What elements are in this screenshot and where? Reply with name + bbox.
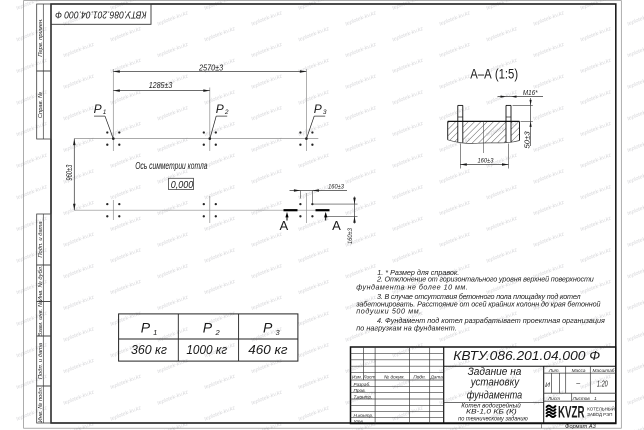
svg-text:P: P bbox=[314, 102, 322, 116]
svg-text:teplotek-kv.kz: teplotek-kv.kz bbox=[486, 89, 519, 106]
svg-text:teplotek-kv.kz: teplotek-kv.kz bbox=[392, 184, 425, 201]
svg-text:teplotek-kv.kz: teplotek-kv.kz bbox=[298, 310, 331, 327]
svg-text:teplotek-kv.kz: teplotek-kv.kz bbox=[0, 200, 1, 217]
svg-text:teplotek-kv.kz: teplotek-kv.kz bbox=[345, 105, 378, 122]
svg-text:teplotek-kv.kz: teplotek-kv.kz bbox=[486, 26, 519, 43]
svg-text:0,000: 0,000 bbox=[171, 179, 194, 191]
svg-text:teplotek-kv.kz: teplotek-kv.kz bbox=[204, 373, 237, 390]
svg-text:teplotek-kv.kz: teplotek-kv.kz bbox=[580, 26, 613, 43]
svg-text:P: P bbox=[141, 319, 151, 335]
svg-text:teplotek-kv.kz: teplotek-kv.kz bbox=[439, 73, 472, 90]
svg-text:teplotek-kv.kz: teplotek-kv.kz bbox=[204, 26, 237, 43]
svg-text:teplotek-kv.kz: teplotek-kv.kz bbox=[0, 294, 1, 311]
svg-text:teplotek-kv.kz: teplotek-kv.kz bbox=[251, 263, 284, 280]
svg-text:teplotek-kv.kz: teplotek-kv.kz bbox=[157, 42, 190, 59]
svg-text:teplotek-kv.kz: teplotek-kv.kz bbox=[63, 294, 96, 311]
svg-text:teplotek-kv.kz: teplotek-kv.kz bbox=[533, 231, 566, 248]
svg-text:teplotek-kv.kz: teplotek-kv.kz bbox=[251, 136, 284, 153]
svg-text:Листов: Листов bbox=[572, 396, 591, 401]
svg-text:teplotek-kv.kz: teplotek-kv.kz bbox=[580, 152, 613, 169]
svg-text:teplotek-kv.kz: teplotek-kv.kz bbox=[627, 231, 644, 248]
svg-text:teplotek-kv.kz: teplotek-kv.kz bbox=[298, 0, 331, 12]
svg-text:Инв. № дубл.: Инв. № дубл. bbox=[38, 265, 44, 301]
svg-text:teplotek-kv.kz: teplotek-kv.kz bbox=[63, 73, 96, 90]
svg-text:teplotek-kv.kz: teplotek-kv.kz bbox=[345, 10, 378, 27]
svg-text:teplotek-kv.kz: teplotek-kv.kz bbox=[63, 200, 96, 217]
svg-text:teplotek-kv.kz: teplotek-kv.kz bbox=[392, 342, 425, 359]
svg-text:2570±3: 2570±3 bbox=[198, 64, 224, 73]
svg-text:Утв.: Утв. bbox=[354, 419, 365, 424]
svg-text:teplotek-kv.kz: teplotek-kv.kz bbox=[251, 73, 284, 90]
svg-text:960±3: 960±3 bbox=[65, 164, 74, 180]
svg-text:teplotek-kv.kz: teplotek-kv.kz bbox=[63, 105, 96, 122]
svg-text:teplotek-kv.kz: teplotek-kv.kz bbox=[110, 310, 143, 327]
svg-text:teplotek-kv.kz: teplotek-kv.kz bbox=[439, 168, 472, 185]
svg-text:teplotek-kv.kz: teplotek-kv.kz bbox=[580, 247, 613, 264]
svg-text:teplotek-kv.kz: teplotek-kv.kz bbox=[251, 358, 284, 375]
svg-text:teplotek-kv.kz: teplotek-kv.kz bbox=[110, 89, 143, 106]
svg-text:50±3: 50±3 bbox=[524, 131, 531, 148]
svg-text:teplotek-kv.kz: teplotek-kv.kz bbox=[392, 0, 425, 12]
svg-text:teplotek-kv.kz: teplotek-kv.kz bbox=[627, 200, 644, 217]
svg-text:teplotek-kv.kz: teplotek-kv.kz bbox=[0, 105, 1, 122]
svg-text:Н.контр.: Н.контр. bbox=[354, 413, 374, 418]
svg-text:teplotek-kv.kz: teplotek-kv.kz bbox=[627, 263, 644, 280]
svg-text:P: P bbox=[203, 319, 213, 335]
svg-text:160±3: 160±3 bbox=[478, 158, 494, 165]
svg-text:teplotek-kv.kz: teplotek-kv.kz bbox=[627, 10, 644, 27]
svg-text:teplotek-kv.kz: teplotek-kv.kz bbox=[486, 0, 519, 12]
svg-text:P: P bbox=[216, 102, 224, 116]
svg-text:КВТУ.086.201.04.000 Ф: КВТУ.086.201.04.000 Ф bbox=[453, 348, 600, 363]
svg-text:1285±3: 1285±3 bbox=[149, 81, 173, 90]
svg-text:Разраб.: Разраб. bbox=[354, 382, 371, 387]
svg-text:teplotek-kv.kz: teplotek-kv.kz bbox=[204, 121, 237, 138]
svg-text:teplotek-kv.kz: teplotek-kv.kz bbox=[63, 326, 96, 343]
svg-text:А: А bbox=[279, 218, 288, 233]
svg-text:460 кг: 460 кг bbox=[248, 342, 288, 357]
svg-text:teplotek-kv.kz: teplotek-kv.kz bbox=[157, 389, 190, 406]
svg-text:teplotek-kv.kz: teplotek-kv.kz bbox=[580, 0, 613, 12]
svg-text:teplotek-kv.kz: teplotek-kv.kz bbox=[110, 26, 143, 43]
svg-text:2: 2 bbox=[215, 328, 221, 337]
svg-text:teplotek-kv.kz: teplotek-kv.kz bbox=[627, 136, 644, 153]
svg-text:teplotek-kv.kz: teplotek-kv.kz bbox=[392, 89, 425, 106]
svg-text:подушки 500 мм.: подушки 500 мм. bbox=[356, 307, 421, 316]
svg-text:teplotek-kv.kz: teplotek-kv.kz bbox=[251, 389, 284, 406]
svg-text:teplotek-kv.kz: teplotek-kv.kz bbox=[110, 279, 143, 296]
svg-text:teplotek-kv.kz: teplotek-kv.kz bbox=[392, 215, 425, 232]
svg-text:А–А (1:5): А–А (1:5) bbox=[470, 67, 518, 82]
svg-text:teplotek-kv.kz: teplotek-kv.kz bbox=[110, 184, 143, 201]
svg-text:Подп.: Подп. bbox=[413, 375, 425, 380]
svg-text:160±3: 160±3 bbox=[328, 184, 344, 191]
svg-text:teplotek-kv.kz: teplotek-kv.kz bbox=[0, 168, 1, 185]
svg-text:teplotek-kv.kz: teplotek-kv.kz bbox=[251, 42, 284, 59]
svg-text:teplotek-kv.kz: teplotek-kv.kz bbox=[204, 152, 237, 169]
svg-text:по нагрузкам на фундамент.: по нагрузкам на фундамент. bbox=[356, 323, 457, 332]
svg-text:teplotek-kv.kz: teplotek-kv.kz bbox=[298, 247, 331, 264]
svg-text:teplotek-kv.kz: teplotek-kv.kz bbox=[110, 247, 143, 264]
svg-text:teplotek-kv.kz: teplotek-kv.kz bbox=[486, 184, 519, 201]
svg-text:teplotek-kv.kz: teplotek-kv.kz bbox=[110, 57, 143, 74]
svg-text:teplotek-kv.kz: teplotek-kv.kz bbox=[157, 200, 190, 217]
svg-text:фундамента: фундамента bbox=[467, 390, 522, 402]
svg-text:teplotek-kv.kz: teplotek-kv.kz bbox=[627, 73, 644, 90]
svg-text:teplotek-kv.kz: teplotek-kv.kz bbox=[533, 105, 566, 122]
svg-text:teplotek-kv.kz: teplotek-kv.kz bbox=[345, 168, 378, 185]
svg-text:teplotek-kv.kz: teplotek-kv.kz bbox=[580, 184, 613, 201]
svg-text:teplotek-kv.kz: teplotek-kv.kz bbox=[392, 121, 425, 138]
svg-text:teplotek-kv.kz: teplotek-kv.kz bbox=[63, 136, 96, 153]
svg-text:teplotek-kv.kz: teplotek-kv.kz bbox=[345, 73, 378, 90]
svg-text:teplotek-kv.kz: teplotek-kv.kz bbox=[580, 57, 613, 74]
svg-text:160±3: 160±3 bbox=[347, 228, 354, 244]
svg-text:teplotek-kv.kz: teplotek-kv.kz bbox=[63, 263, 96, 280]
svg-text:teplotek-kv.kz: teplotek-kv.kz bbox=[0, 10, 1, 27]
svg-text:teplotek-kv.kz: teplotek-kv.kz bbox=[439, 42, 472, 59]
svg-text:М16*: М16* bbox=[523, 88, 539, 97]
svg-text:teplotek-kv.kz: teplotek-kv.kz bbox=[345, 263, 378, 280]
svg-text:teplotek-kv.kz: teplotek-kv.kz bbox=[392, 405, 425, 422]
svg-text:teplotek-kv.kz: teplotek-kv.kz bbox=[204, 184, 237, 201]
svg-text:360 кг: 360 кг bbox=[131, 342, 168, 357]
svg-text:teplotek-kv.kz: teplotek-kv.kz bbox=[486, 121, 519, 138]
svg-text:–: – bbox=[575, 381, 580, 388]
svg-text:teplotek-kv.kz: teplotek-kv.kz bbox=[486, 247, 519, 264]
svg-text:teplotek-kv.kz: teplotek-kv.kz bbox=[392, 152, 425, 169]
svg-text:КВ-1,0 КБ (К): КВ-1,0 КБ (К) bbox=[466, 409, 517, 416]
svg-text:teplotek-kv.kz: teplotek-kv.kz bbox=[298, 279, 331, 296]
svg-text:P: P bbox=[94, 102, 102, 116]
svg-text:teplotek-kv.kz: teplotek-kv.kz bbox=[627, 105, 644, 122]
svg-text:Лист: Лист bbox=[547, 396, 560, 401]
svg-text:teplotek-kv.kz: teplotek-kv.kz bbox=[0, 42, 1, 59]
svg-text:teplotek-kv.kz: teplotek-kv.kz bbox=[157, 105, 190, 122]
svg-text:teplotek-kv.kz: teplotek-kv.kz bbox=[0, 358, 1, 375]
svg-text:teplotek-kv.kz: teplotek-kv.kz bbox=[157, 231, 190, 248]
svg-text:teplotek-kv.kz: teplotek-kv.kz bbox=[392, 247, 425, 264]
svg-text:teplotek-kv.kz: teplotek-kv.kz bbox=[439, 136, 472, 153]
svg-text:Подп. и дата: Подп. и дата bbox=[38, 342, 44, 379]
svg-text:teplotek-kv.kz: teplotek-kv.kz bbox=[345, 136, 378, 153]
svg-text:teplotek-kv.kz: teplotek-kv.kz bbox=[110, 373, 143, 390]
svg-text:Взам. инв. №: Взам. инв. № bbox=[38, 301, 44, 337]
svg-text:teplotek-kv.kz: teplotek-kv.kz bbox=[251, 200, 284, 217]
svg-text:teplotek-kv.kz: teplotek-kv.kz bbox=[63, 42, 96, 59]
svg-text:teplotek-kv.kz: teplotek-kv.kz bbox=[298, 342, 331, 359]
svg-text:teplotek-kv.kz: teplotek-kv.kz bbox=[439, 200, 472, 217]
svg-text:teplotek-kv.kz: teplotek-kv.kz bbox=[63, 231, 96, 248]
svg-text:teplotek-kv.kz: teplotek-kv.kz bbox=[627, 168, 644, 185]
svg-text:teplotek-kv.kz: teplotek-kv.kz bbox=[204, 279, 237, 296]
svg-text:teplotek-kv.kz: teplotek-kv.kz bbox=[533, 168, 566, 185]
svg-text:teplotek-kv.kz: teplotek-kv.kz bbox=[0, 231, 1, 248]
svg-text:teplotek-kv.kz: teplotek-kv.kz bbox=[298, 121, 331, 138]
svg-text:1000 кг: 1000 кг bbox=[186, 342, 227, 357]
svg-text:Ось симметрии котла: Ось симметрии котла bbox=[135, 161, 207, 172]
svg-text:2: 2 bbox=[224, 109, 229, 116]
svg-text:teplotek-kv.kz: teplotek-kv.kz bbox=[486, 215, 519, 232]
svg-text:teplotek-kv.kz: teplotek-kv.kz bbox=[251, 168, 284, 185]
svg-text:teplotek-kv.kz: teplotek-kv.kz bbox=[0, 421, 1, 430]
svg-text:teplotek-kv.kz: teplotek-kv.kz bbox=[110, 215, 143, 232]
svg-text:Справ. №: Справ. № bbox=[38, 92, 44, 118]
svg-text:teplotek-kv.kz: teplotek-kv.kz bbox=[204, 215, 237, 232]
svg-text:teplotek-kv.kz: teplotek-kv.kz bbox=[627, 389, 644, 406]
svg-text:teplotek-kv.kz: teplotek-kv.kz bbox=[110, 121, 143, 138]
svg-text:teplotek-kv.kz: teplotek-kv.kz bbox=[298, 57, 331, 74]
svg-text:КОТЕЛЬНЫЙ: КОТЕЛЬНЫЙ bbox=[587, 407, 615, 412]
svg-text:1: 1 bbox=[594, 396, 597, 401]
svg-text:teplotek-kv.kz: teplotek-kv.kz bbox=[345, 42, 378, 59]
svg-text:1: 1 bbox=[103, 109, 107, 116]
svg-text:teplotek-kv.kz: teplotek-kv.kz bbox=[627, 326, 644, 343]
svg-text:1:20: 1:20 bbox=[597, 379, 608, 389]
svg-text:teplotek-kv.kz: teplotek-kv.kz bbox=[157, 136, 190, 153]
svg-text:teplotek-kv.kz: teplotek-kv.kz bbox=[204, 405, 237, 422]
svg-text:Подп. и дата: Подп. и дата bbox=[38, 221, 44, 258]
svg-text:teplotek-kv.kz: teplotek-kv.kz bbox=[204, 0, 237, 12]
svg-text:teplotek-kv.kz: teplotek-kv.kz bbox=[298, 152, 331, 169]
svg-text:teplotek-kv.kz: teplotek-kv.kz bbox=[580, 121, 613, 138]
svg-text:teplotek-kv.kz: teplotek-kv.kz bbox=[439, 10, 472, 27]
svg-text:teplotek-kv.kz: teplotek-kv.kz bbox=[627, 421, 644, 430]
svg-text:teplotek-kv.kz: teplotek-kv.kz bbox=[533, 10, 566, 27]
svg-text:teplotek-kv.kz: teplotek-kv.kz bbox=[298, 26, 331, 43]
svg-text:Лист: Лист bbox=[362, 375, 375, 380]
svg-text:по техническому заданию: по техническому заданию bbox=[458, 415, 528, 423]
svg-text:№ докум.: № докум. bbox=[384, 375, 405, 380]
svg-text:Масштаб: Масштаб bbox=[593, 368, 615, 373]
svg-text:фундамента не более 10 мм.: фундамента не более 10 мм. bbox=[356, 282, 468, 291]
svg-text:teplotek-kv.kz: teplotek-kv.kz bbox=[204, 247, 237, 264]
svg-text:teplotek-kv.kz: teplotek-kv.kz bbox=[16, 152, 49, 169]
svg-text:Изм.: Изм. bbox=[352, 375, 362, 380]
svg-text:teplotek-kv.kz: teplotek-kv.kz bbox=[0, 389, 1, 406]
svg-text:1: 1 bbox=[153, 328, 157, 337]
svg-text:teplotek-kv.kz: teplotek-kv.kz bbox=[580, 89, 613, 106]
svg-text:teplotek-kv.kz: teplotek-kv.kz bbox=[298, 373, 331, 390]
svg-text:teplotek-kv.kz: teplotek-kv.kz bbox=[157, 358, 190, 375]
svg-text:teplotek-kv.kz: teplotek-kv.kz bbox=[533, 42, 566, 59]
svg-text:teplotek-kv.kz: teplotek-kv.kz bbox=[157, 294, 190, 311]
svg-text:teplotek-kv.kz: teplotek-kv.kz bbox=[251, 10, 284, 27]
svg-text:teplotek-kv.kz: teplotek-kv.kz bbox=[533, 200, 566, 217]
svg-text:KVZR: KVZR bbox=[558, 403, 585, 422]
svg-text:teplotek-kv.kz: teplotek-kv.kz bbox=[251, 231, 284, 248]
svg-text:teplotek-kv.kz: teplotek-kv.kz bbox=[298, 184, 331, 201]
svg-text:teplotek-kv.kz: teplotek-kv.kz bbox=[580, 215, 613, 232]
svg-text:И: И bbox=[545, 382, 550, 389]
svg-text:P: P bbox=[263, 319, 273, 335]
svg-text:установку: установку bbox=[470, 376, 521, 388]
svg-text:teplotek-kv.kz: teplotek-kv.kz bbox=[392, 57, 425, 74]
svg-text:teplotek-kv.kz: teplotek-kv.kz bbox=[63, 389, 96, 406]
svg-text:Т.контр.: Т.контр. bbox=[354, 394, 373, 399]
svg-text:teplotek-kv.kz: teplotek-kv.kz bbox=[627, 358, 644, 375]
svg-text:teplotek-kv.kz: teplotek-kv.kz bbox=[298, 405, 331, 422]
svg-text:Перв. примен.: Перв. примен. bbox=[38, 18, 44, 57]
svg-text:teplotek-kv.kz: teplotek-kv.kz bbox=[251, 294, 284, 311]
svg-text:teplotek-kv.kz: teplotek-kv.kz bbox=[0, 326, 1, 343]
svg-text:teplotek-kv.kz: teplotek-kv.kz bbox=[0, 136, 1, 153]
svg-text:ЗАВОД РЭП: ЗАВОД РЭП bbox=[587, 412, 612, 417]
svg-text:Инв. № подл.: Инв. № подл. bbox=[38, 387, 44, 423]
svg-text:teplotek-kv.kz: teplotek-kv.kz bbox=[110, 405, 143, 422]
svg-text:teplotek-kv.kz: teplotek-kv.kz bbox=[392, 26, 425, 43]
svg-text:teplotek-kv.kz: teplotek-kv.kz bbox=[439, 231, 472, 248]
svg-text:teplotek-kv.kz: teplotek-kv.kz bbox=[63, 358, 96, 375]
svg-text:Формат А3: Формат А3 bbox=[565, 424, 597, 430]
svg-text:teplotek-kv.kz: teplotek-kv.kz bbox=[345, 200, 378, 217]
svg-text:teplotek-kv.kz: teplotek-kv.kz bbox=[251, 105, 284, 122]
svg-text:teplotek-kv.kz: teplotek-kv.kz bbox=[157, 10, 190, 27]
svg-text:А: А bbox=[332, 218, 341, 233]
svg-text:Лит.: Лит. bbox=[548, 368, 560, 373]
svg-text:teplotek-kv.kz: teplotek-kv.kz bbox=[0, 73, 1, 90]
svg-text:Пров.: Пров. bbox=[354, 388, 366, 393]
svg-text:teplotek-kv.kz: teplotek-kv.kz bbox=[439, 105, 472, 122]
svg-text:teplotek-kv.kz: teplotek-kv.kz bbox=[533, 326, 566, 343]
svg-text:teplotek-kv.kz: teplotek-kv.kz bbox=[627, 42, 644, 59]
svg-text:teplotek-kv.kz: teplotek-kv.kz bbox=[533, 136, 566, 153]
svg-text:3: 3 bbox=[323, 109, 327, 116]
svg-text:teplotek-kv.kz: teplotek-kv.kz bbox=[157, 263, 190, 280]
svg-text:Масса: Масса bbox=[572, 368, 586, 373]
svg-text:teplotek-kv.kz: teplotek-kv.kz bbox=[627, 294, 644, 311]
svg-text:teplotek-kv.kz: teplotek-kv.kz bbox=[16, 184, 49, 201]
svg-text:КВТУ.086.201.04.000 Ф: КВТУ.086.201.04.000 Ф bbox=[55, 9, 146, 20]
svg-text:Дата: Дата bbox=[430, 375, 444, 380]
svg-text:teplotek-kv.kz: teplotek-kv.kz bbox=[0, 263, 1, 280]
